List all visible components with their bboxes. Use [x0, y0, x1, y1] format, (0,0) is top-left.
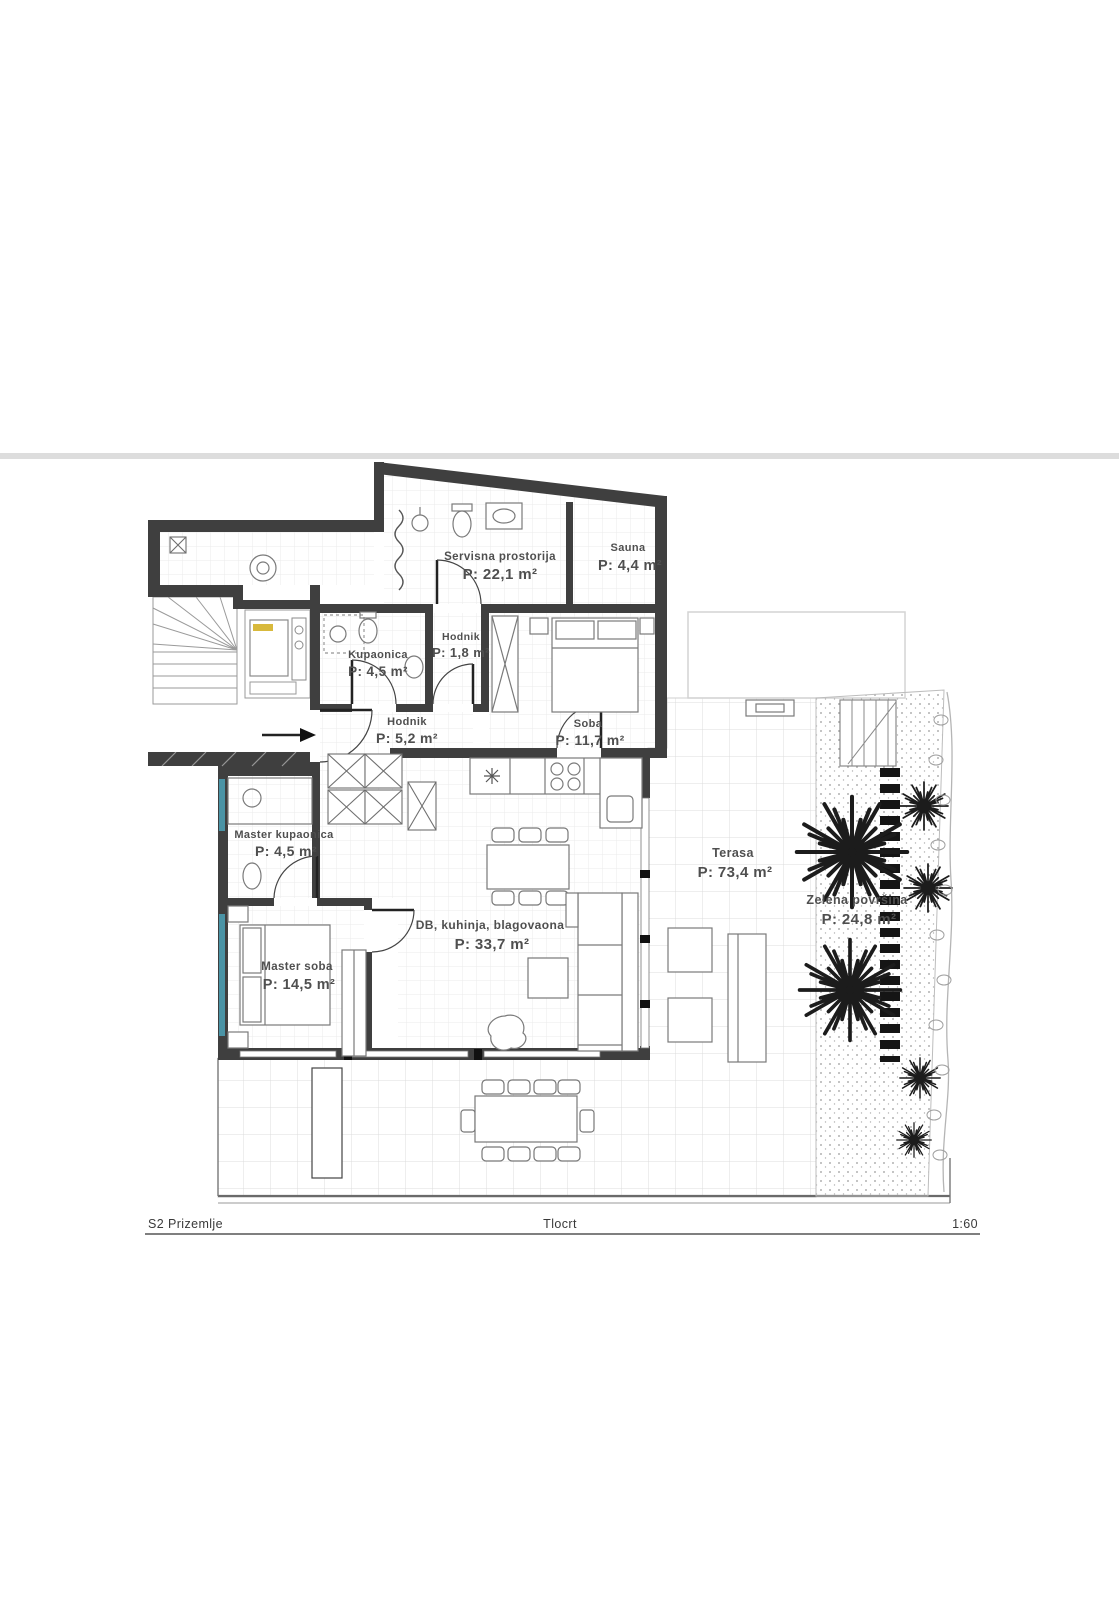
glass-wall: [641, 798, 649, 1048]
slider-glass: [484, 1051, 600, 1057]
garden-steps-icon: [840, 700, 896, 766]
toilet-icon: [243, 863, 261, 889]
room-label-soba: Soba: [574, 718, 603, 730]
technical-room: [245, 610, 310, 698]
room-area-master-kupaonica: P: 4,5 m²: [255, 843, 317, 859]
kitchen-sink-icon: [484, 768, 500, 784]
washer-icon: [250, 555, 276, 581]
shower-icon: [330, 626, 346, 642]
coffee-table-icon: [528, 958, 568, 998]
slider-glass: [240, 1051, 336, 1057]
room-label-master-soba: Master soba: [261, 961, 333, 973]
room-label-hodnik: Hodnik: [387, 716, 427, 728]
sink-icon: [493, 509, 515, 523]
lounge-chair-icon: [668, 928, 712, 972]
room-label-servisna: Servisna prostorija: [444, 551, 556, 563]
room-area-sauna: P: 4,4 m²: [598, 558, 662, 574]
drawing-type: Tlocrt: [543, 1217, 577, 1231]
room-label-master-kupaonica: Master kupaonica: [234, 829, 334, 841]
privacy-screen-icon: [312, 1068, 342, 1178]
nightstand-icon: [228, 906, 248, 922]
page-top-divider: [0, 453, 1119, 459]
sink-icon: [607, 796, 633, 822]
room-area-hodnik-mali: P: 1,8 m²: [432, 645, 490, 660]
nightstand-icon: [640, 618, 654, 634]
room-area-soba: P: 11,7 m²: [555, 732, 624, 748]
room-label-kupaonica: Kupaonica: [348, 649, 408, 661]
room-area-master-soba: P: 14,5 m²: [263, 977, 336, 993]
outdoor-sofa-icon: [728, 934, 766, 1062]
room-area-hodnik: P: 5,2 m²: [376, 730, 438, 746]
toilet-icon: [359, 619, 377, 643]
planter-box-icon: [746, 700, 794, 716]
room-label-sauna: Sauna: [610, 542, 645, 554]
room-area-zelena: P: 24,8 m²: [822, 911, 897, 928]
window-glass: [219, 914, 225, 1036]
slider-glass: [352, 1051, 468, 1057]
room-area-terasa: P: 73,4 m²: [698, 864, 773, 881]
toilet-icon: [453, 511, 471, 537]
nightstand-icon: [228, 1032, 248, 1048]
stairs-icon: [153, 597, 237, 704]
room-area-dnevni: P: 33,7 m²: [455, 936, 530, 953]
floor-plan-drawing: Servisna prostorija P: 22,1 m² Sauna P: …: [0, 0, 1119, 1600]
scale-value: 1:60: [952, 1217, 978, 1231]
room-label-dnevni: DB, kuhinja, blagovaona: [416, 918, 565, 932]
window-glass: [219, 779, 225, 831]
beanbag-icon: [488, 1015, 526, 1050]
sheet-name: S2 Prizemlje: [148, 1217, 223, 1231]
room-area-servisna: P: 22,1 m²: [463, 566, 538, 583]
room-label-hodnik-mali: Hodnik: [442, 631, 480, 643]
floor-plan-page: Servisna prostorija P: 22,1 m² Sauna P: …: [0, 0, 1119, 1600]
dining-table-icon: [487, 828, 569, 905]
nightstand-icon: [530, 618, 548, 634]
sink-icon: [412, 515, 428, 531]
equipment-tag: [253, 624, 273, 631]
room-area-kupaonica: P: 4,5 m²: [348, 664, 408, 679]
room-label-terasa: Terasa: [712, 846, 754, 860]
room-label-zelena: Zelena površina: [806, 893, 908, 907]
soba-furniture: [492, 616, 654, 712]
green-area: [797, 690, 952, 1196]
lounge-chair-icon: [668, 998, 712, 1042]
